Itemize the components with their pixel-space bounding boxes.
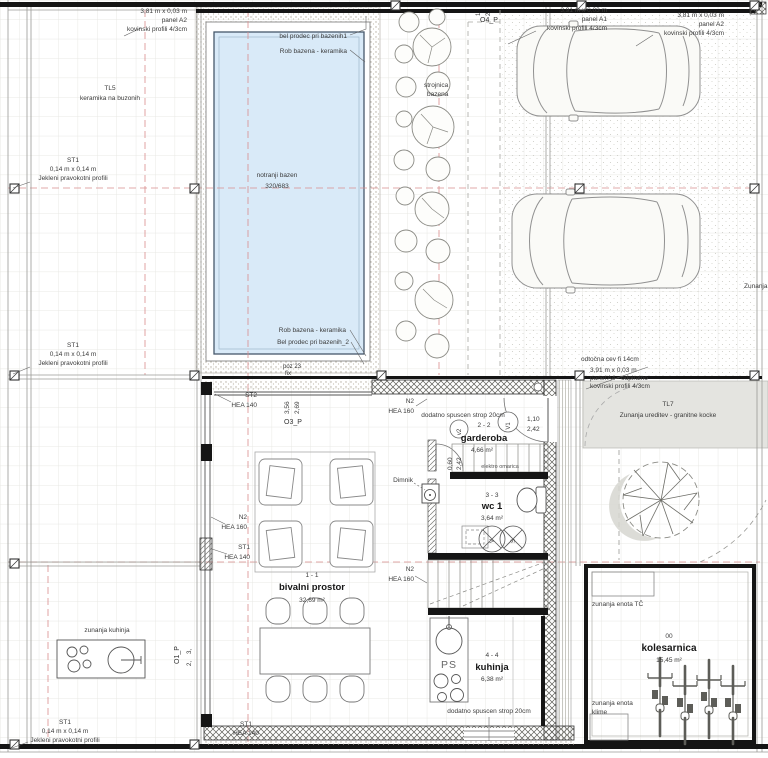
label-st1-bottom2: HEA 140 xyxy=(233,730,259,737)
label-panel-a2-rightc: kovinski profili 4/3cm xyxy=(664,30,724,37)
label-kuhinja: kuhinja xyxy=(475,662,509,673)
label-zunanja: Zunanja xyxy=(744,283,768,290)
dim-269: 2,69 xyxy=(294,401,301,414)
chair xyxy=(266,676,290,702)
label-panel-a2-left: 3,81 m x 0,03 m xyxy=(140,8,187,15)
wall-top xyxy=(372,380,544,394)
label-strojnica: strojnica xyxy=(424,82,449,89)
label-wc-sec: 3 - 3 xyxy=(485,492,498,499)
label-st1-b2: 0,14 m x 0,14 m xyxy=(50,351,97,358)
label-pool-bot2: Bel prodec pri bazenih_2 xyxy=(277,339,349,346)
label-elektro: elektro omarica xyxy=(481,464,520,470)
label-tl5: TL5 xyxy=(104,85,116,92)
sofa xyxy=(259,521,302,567)
label-kuhinja-area: 6,38 m² xyxy=(481,676,504,683)
wall-garderoba xyxy=(428,440,436,471)
label-st2: ST2 xyxy=(245,392,257,399)
sofa xyxy=(330,459,373,505)
label-st1-c3: Jekleni pravokotni profili xyxy=(30,737,99,744)
label-st1-a3: Jekleni pravokotni profili xyxy=(38,175,107,182)
label-poz: poz 23 xyxy=(283,364,302,370)
chair xyxy=(303,676,327,702)
label-panel-a1c: kovinski profili 4/3cm xyxy=(547,25,607,32)
label-strojnica2: bazena xyxy=(427,91,449,98)
label-enota-tc: zunanja enota TČ xyxy=(592,599,643,608)
label-n2-c: N2 xyxy=(406,566,415,573)
label-st1-wall: ST1 xyxy=(238,544,250,551)
label-garderoba: garderoba xyxy=(461,433,508,444)
label-bivalni-area: 32,69 m² xyxy=(299,597,325,604)
sofa xyxy=(330,521,373,567)
chair xyxy=(340,598,364,624)
label-wc: wc 1 xyxy=(481,501,503,512)
label-vent-s: S xyxy=(511,539,517,543)
label-st1-a2: 0,14 m x 0,14 m xyxy=(50,166,97,173)
label-n2-b2: HEA 160 xyxy=(221,524,247,531)
label-tl7-sub: Zunanja ureditev - granitne kocke xyxy=(620,412,717,419)
label-kolesarnica: kolesarnica xyxy=(641,643,696,654)
label-o1p: O1_P xyxy=(174,646,181,664)
dim-242: 2,42 xyxy=(527,426,540,433)
toilet xyxy=(517,487,546,513)
car-bottom xyxy=(512,189,700,293)
label-tl5-sub: keramika na buzonih xyxy=(80,95,140,102)
label-st1-c: ST1 xyxy=(59,719,71,726)
label-bivalni-sec: 1 - 1 xyxy=(305,572,318,579)
dim-242b: 2,42 xyxy=(456,457,463,470)
label-n2-b: N2 xyxy=(239,514,248,521)
label-panel-a4: 3,91 m x 0,03 m xyxy=(590,367,637,374)
dim-3: 3, xyxy=(187,649,193,654)
dim-4: 2, xyxy=(187,661,193,666)
floor-plan-page: 3,81 m x 0,03 m panel A2 kovinski profil… xyxy=(0,0,768,758)
label-dimnik: Dimnik xyxy=(393,477,414,484)
sofa xyxy=(259,459,302,505)
label-o4p: O4_P xyxy=(480,17,498,24)
pool-water xyxy=(214,32,364,354)
label-pool-name: notranji bazen xyxy=(257,172,298,179)
dim-060: 0,60 xyxy=(447,457,454,470)
label-st1-b3: Jekleni pravokotni profili xyxy=(38,360,107,367)
floor-plan-drawing: 3,81 m x 0,03 m panel A2 kovinski profil… xyxy=(0,0,768,758)
label-ps: PS xyxy=(441,659,457,671)
label-garderoba-area: 4,66 m² xyxy=(471,447,494,454)
label-st1-c2: 0,14 m x 0,14 m xyxy=(42,728,89,735)
label-panel-a2-left3: kovinski profili 4/3cm xyxy=(127,26,187,33)
label-vent-v: V xyxy=(490,539,496,543)
label-wc-area: 3,64 m² xyxy=(481,515,504,522)
label-st1-bottom: ST1 xyxy=(240,721,252,728)
label-odtocna: odtočna cev fi 14cm xyxy=(581,356,639,363)
label-panel-a4b: panel A4 - odpiralno xyxy=(590,375,648,382)
label-panel-a1b: panel A1 xyxy=(582,16,608,23)
dim-110: 1,10 xyxy=(527,416,540,423)
chair xyxy=(340,676,364,702)
label-st1-b: ST1 xyxy=(67,342,79,349)
label-n2-c2: HEA 160 xyxy=(388,576,414,583)
chair xyxy=(266,598,290,624)
label-st1-a: ST1 xyxy=(67,157,79,164)
label-pool-size: 320/683 xyxy=(265,183,289,190)
label-dodatno-garderoba: dodatno spuscen strop 20cm xyxy=(421,412,504,419)
label-dodatno-kuhinja: dodatno spuscen strop 20cm xyxy=(447,708,530,715)
dining-set xyxy=(260,598,370,702)
label-kolesarnica-num: 00 xyxy=(665,633,673,640)
label-panel-a2-right: 3,81 m x 0,03 m xyxy=(677,12,724,19)
label-v1: V1 xyxy=(506,422,512,430)
label-bivalni: bivalni prostor xyxy=(279,582,345,593)
label-zunanja-kuhinja: zunanja kuhinja xyxy=(84,627,130,634)
label-enota-klime2: klime xyxy=(592,709,608,716)
label-panel-a1: 3,91 m x 0,03 m xyxy=(560,7,607,14)
label-st2-hea: HEA 140 xyxy=(231,402,257,409)
wall-wc-top xyxy=(450,472,548,479)
label-o3p: O3_P xyxy=(284,419,302,426)
outdoor-kitchen xyxy=(57,640,145,678)
wall-stairs-bottom xyxy=(428,608,548,615)
dining-table xyxy=(260,628,370,674)
label-pool-top1: bel prodec pri bazenih1 xyxy=(279,33,347,40)
label-n2-a: N2 xyxy=(406,398,415,405)
chimney xyxy=(422,484,439,503)
label-tl7: TL7 xyxy=(662,401,674,408)
pool-area xyxy=(196,7,380,373)
wall-bottom xyxy=(204,726,574,740)
label-garderoba-sec: 2 - 2 xyxy=(477,422,490,429)
label-pool-bot1: Rob bazena - keramika xyxy=(279,327,347,334)
label-st1-wall2: HEA 140 xyxy=(224,554,250,561)
label-panel-a4c: kovinski profili 4/3cm xyxy=(590,383,650,390)
dim-356: 3,56 xyxy=(284,401,291,414)
label-kuhinja-sec: 4 - 4 xyxy=(485,652,498,659)
label-fix: fix xyxy=(285,371,291,377)
label-panel-a2-rightb: panel A2 xyxy=(699,21,725,28)
label-pool-top2: Rob bazena - keramika xyxy=(280,48,348,55)
label-n2-a2: HEA 160 xyxy=(388,408,414,415)
wall-wc-bottom xyxy=(428,553,548,560)
label-kolesarnica-area: 15,45 m² xyxy=(656,657,682,664)
label-enota-klime: zunanja enota xyxy=(592,700,633,707)
entry-door-opening xyxy=(543,396,557,442)
label-panel-a2-left2: panel A2 xyxy=(162,17,188,24)
